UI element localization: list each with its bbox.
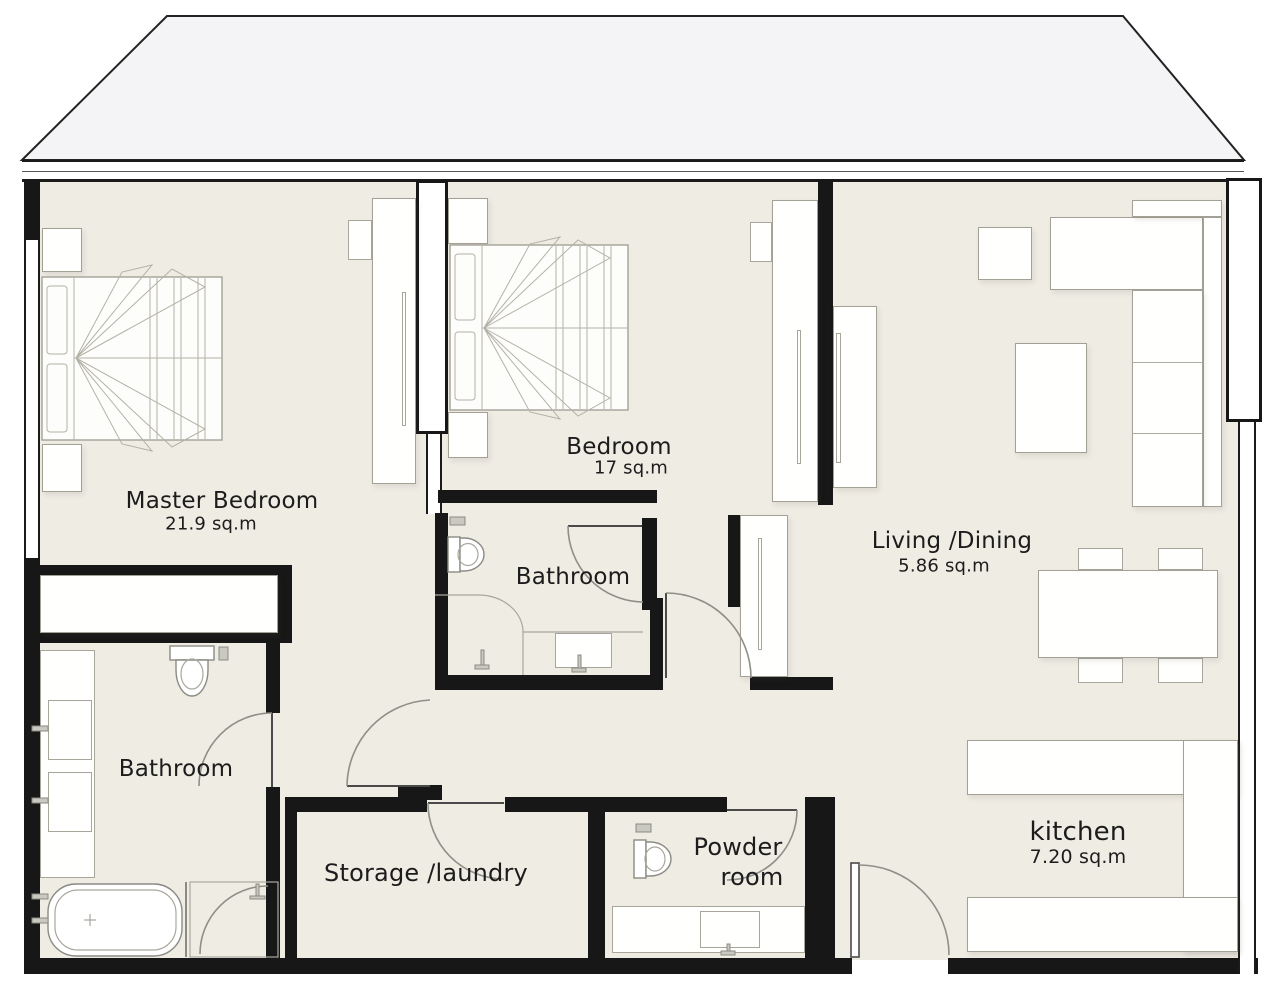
- label-kitchen: kitchen: [1029, 817, 1126, 847]
- midbath-toilet: [448, 517, 484, 572]
- label-master-bedroom: Master Bedroom: [126, 488, 319, 514]
- master-bed: [42, 265, 222, 451]
- powder-faucet: [721, 944, 735, 955]
- bedroom-bed: [450, 237, 628, 419]
- label-storage-laundry: Storage /laundry: [324, 859, 528, 887]
- door-master-bedroom: [347, 700, 430, 786]
- label-living-dining-area: 5.86 sq.m: [898, 556, 990, 577]
- label-bathroom-middle: Bathroom: [516, 564, 631, 590]
- label-bathroom-master: Bathroom: [119, 756, 234, 782]
- door-entrance: [851, 863, 949, 957]
- midbath-shower: [435, 595, 643, 675]
- floor-plan: Master Bedroom 21.9 sq.m Bedroom 17 sq.m…: [0, 0, 1280, 1006]
- label-powder-line1: Powder: [694, 833, 783, 861]
- label-living-dining: Living /Dining: [872, 528, 1033, 554]
- label-bedroom: Bedroom: [566, 434, 671, 460]
- label-kitchen-area: 7.20 sq.m: [1030, 846, 1127, 868]
- label-bedroom-area: 17 sq.m: [594, 458, 668, 479]
- label-master-bedroom-area: 21.9 sq.m: [165, 514, 257, 535]
- powder-toilet: [634, 824, 671, 878]
- label-powder-line2: room: [721, 863, 784, 891]
- ensuite-toilet: [170, 646, 228, 696]
- ensuite-shower: [186, 882, 278, 957]
- door-hall-living: [666, 593, 751, 678]
